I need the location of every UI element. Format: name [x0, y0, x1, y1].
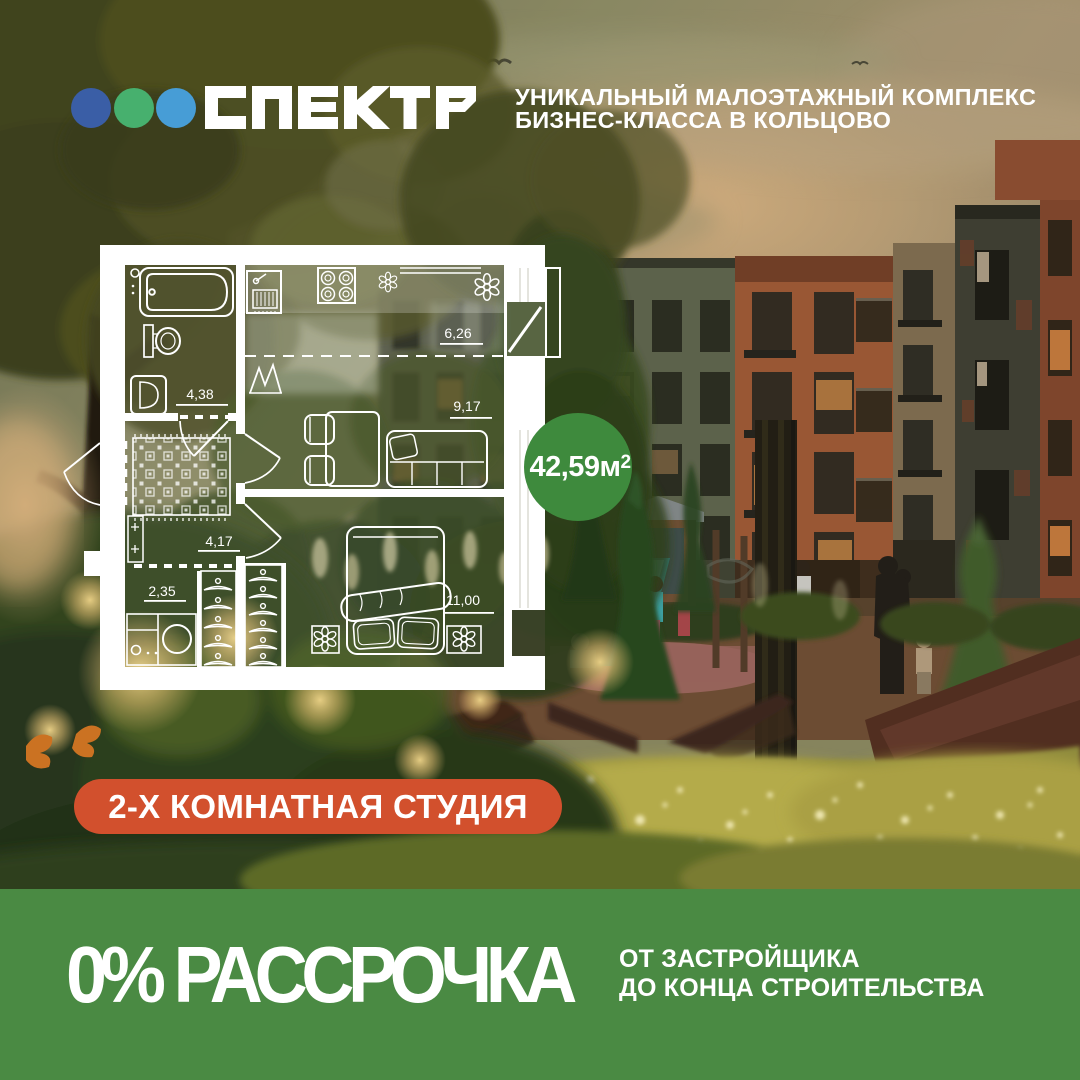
svg-text:4,17: 4,17	[205, 533, 232, 549]
svg-text:9,17: 9,17	[453, 398, 480, 414]
svg-text:4,38: 4,38	[186, 386, 213, 402]
svg-text:11,00: 11,00	[446, 592, 480, 608]
svg-text:2,35: 2,35	[148, 583, 175, 599]
svg-text:6,26: 6,26	[444, 325, 471, 341]
